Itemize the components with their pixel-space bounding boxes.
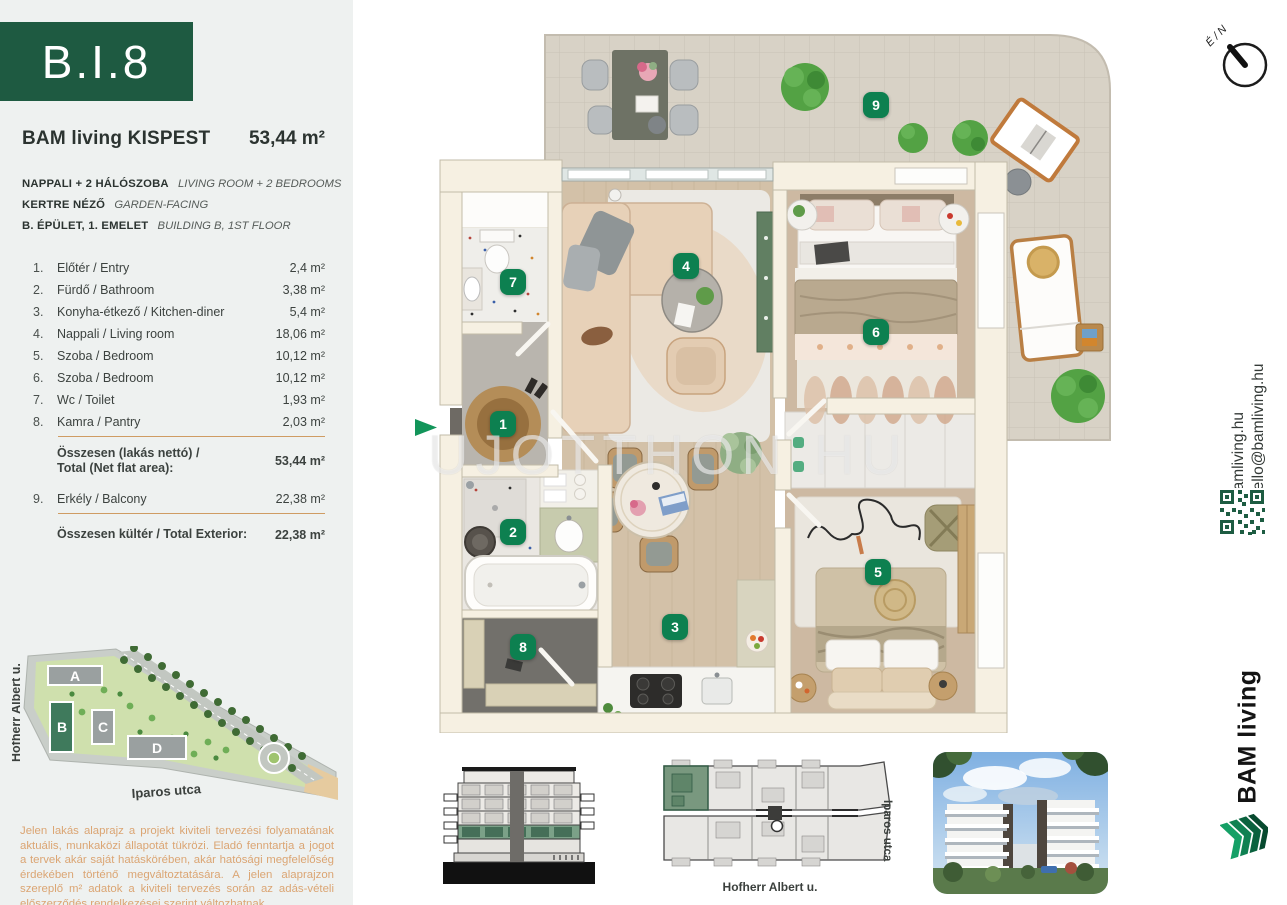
website-link[interactable]: bamliving.hu (1229, 321, 1249, 499)
table-row-balcony: 9.Erkély / Balcony22,38 m² (22, 488, 325, 510)
table-row: 1.Előtér / Entry2,4 m² (22, 257, 325, 279)
brand-wordmark: BAM living (1234, 656, 1263, 818)
building-keyplan: Iparos utca (652, 758, 897, 898)
building-a-label: A (70, 668, 80, 684)
building-elevation (438, 762, 603, 895)
street-label-iparos: Iparos utca (131, 781, 202, 801)
room-badge-bathroom: 2 (500, 519, 526, 545)
subtitle-building: B. ÉPÜLET, 1. EMELET BUILDING B, 1ST FLO… (22, 220, 342, 241)
room-area-table: 1.Előtér / Entry2,4 m² 2.Fürdő / Bathroo… (22, 257, 325, 546)
keyplan-street-right: Iparos utca (881, 800, 893, 862)
compass-label: É / N (1203, 23, 1230, 50)
table-row: 2.Fürdő / Bathroom3,38 m² (22, 279, 325, 301)
unit-subtitles: NAPPALI + 2 HÁLÓSZOBA LIVING ROOM + 2 BE… (22, 178, 342, 241)
total-area-value: 53,44 m² (249, 128, 325, 150)
site-map: A B C D Hofherr Albert u. Iparos utca (12, 646, 344, 810)
table-row: 4.Nappali / Living room18,06 m² (22, 323, 325, 345)
left-info-panel: B.I.8 BAM living KISPEST 53,44 m² NAPPAL… (0, 0, 353, 905)
table-row: 7.Wc / Toilet1,93 m² (22, 389, 325, 411)
building-b-label: B (57, 719, 67, 735)
net-total-row: Összesen (lakás nettó) / Total (Net flat… (57, 440, 325, 480)
room-badge-bedroom6: 6 (863, 319, 889, 345)
disclaimer-text: Jelen lakás alaprajz a projekt kiviteli … (20, 824, 334, 905)
unit-code: B.I.8 (42, 35, 152, 89)
subtitle-orientation: KERTRE NÉZŐ GARDEN-FACING (22, 199, 342, 220)
bedroom6-furniture (787, 194, 969, 424)
orange-divider (58, 513, 325, 514)
building-d-label: D (152, 740, 162, 756)
exterior-total-value: 22,38 m² (275, 528, 325, 542)
floor-plan (410, 28, 1140, 733)
room-badge-living: 4 (673, 253, 699, 279)
compass-icon: É / N (1200, 15, 1287, 105)
net-total-value: 53,44 m² (275, 454, 325, 468)
room-badge-bedroom5: 5 (865, 559, 891, 585)
contact-block: bamliving.hu hello@bamliving.hu (1229, 321, 1269, 499)
room-badge-wc: 7 (500, 269, 526, 295)
brand-chevron-logo-icon (1220, 812, 1268, 860)
street-label-hofherr: Hofherr Albert u. (12, 663, 23, 762)
table-row: 3.Konyha-étkező / Kitchen-diner5,4 m² (22, 301, 325, 323)
roundabout (259, 743, 289, 773)
table-row: 8.Kamra / Pantry2,03 m² (22, 411, 325, 433)
email-link[interactable]: hello@bamliving.hu (1249, 321, 1269, 499)
room-badge-pantry: 8 (510, 634, 536, 660)
building-c-label: C (98, 719, 108, 735)
subtitle-layout: NAPPALI + 2 HÁLÓSZOBA LIVING ROOM + 2 BE… (22, 178, 342, 199)
unit-code-box: B.I.8 (0, 22, 193, 101)
floorplan-flyer-page: B.I.8 BAM living KISPEST 53,44 m² NAPPAL… (0, 0, 1287, 905)
table-row: 5.Szoba / Bedroom10,12 m² (22, 345, 325, 367)
qr-code (1218, 488, 1266, 536)
orange-divider (58, 436, 325, 437)
table-row: 6.Szoba / Bedroom10,12 m² (22, 367, 325, 389)
room-badge-entry: 1 (490, 411, 516, 437)
keyplan-street-bottom: Hofherr Albert u. (700, 880, 840, 894)
title-row: BAM living KISPEST 53,44 m² (22, 128, 325, 150)
room-badge-balcony: 9 (863, 92, 889, 118)
exterior-total-row: Összesen kültér / Total Exterior: 22,38 … (57, 517, 325, 546)
living-room-furniture (562, 189, 785, 442)
room-badge-kitchen: 3 (662, 614, 688, 640)
entry-arrow-icon (415, 419, 437, 436)
building-render-photo (933, 752, 1108, 894)
balcony-glass-door (562, 168, 773, 181)
project-title: BAM living KISPEST (22, 128, 210, 150)
